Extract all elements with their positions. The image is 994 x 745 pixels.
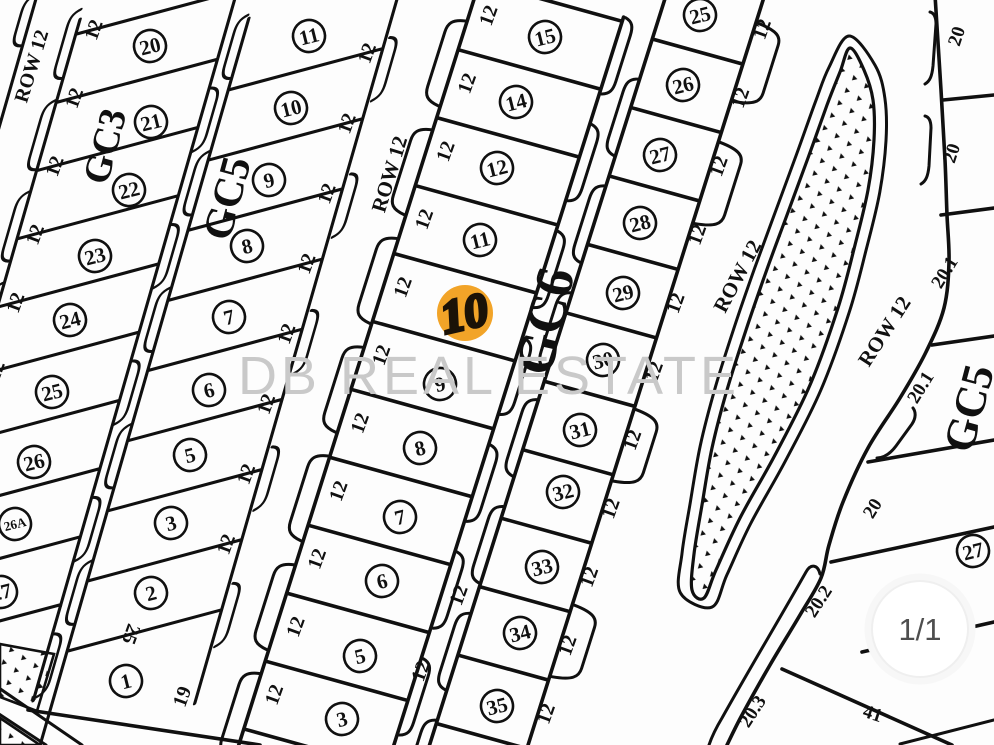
svg-text:DB REAL ESTATE: DB REAL ESTATE xyxy=(238,346,740,406)
svg-text:1/1: 1/1 xyxy=(898,612,941,647)
